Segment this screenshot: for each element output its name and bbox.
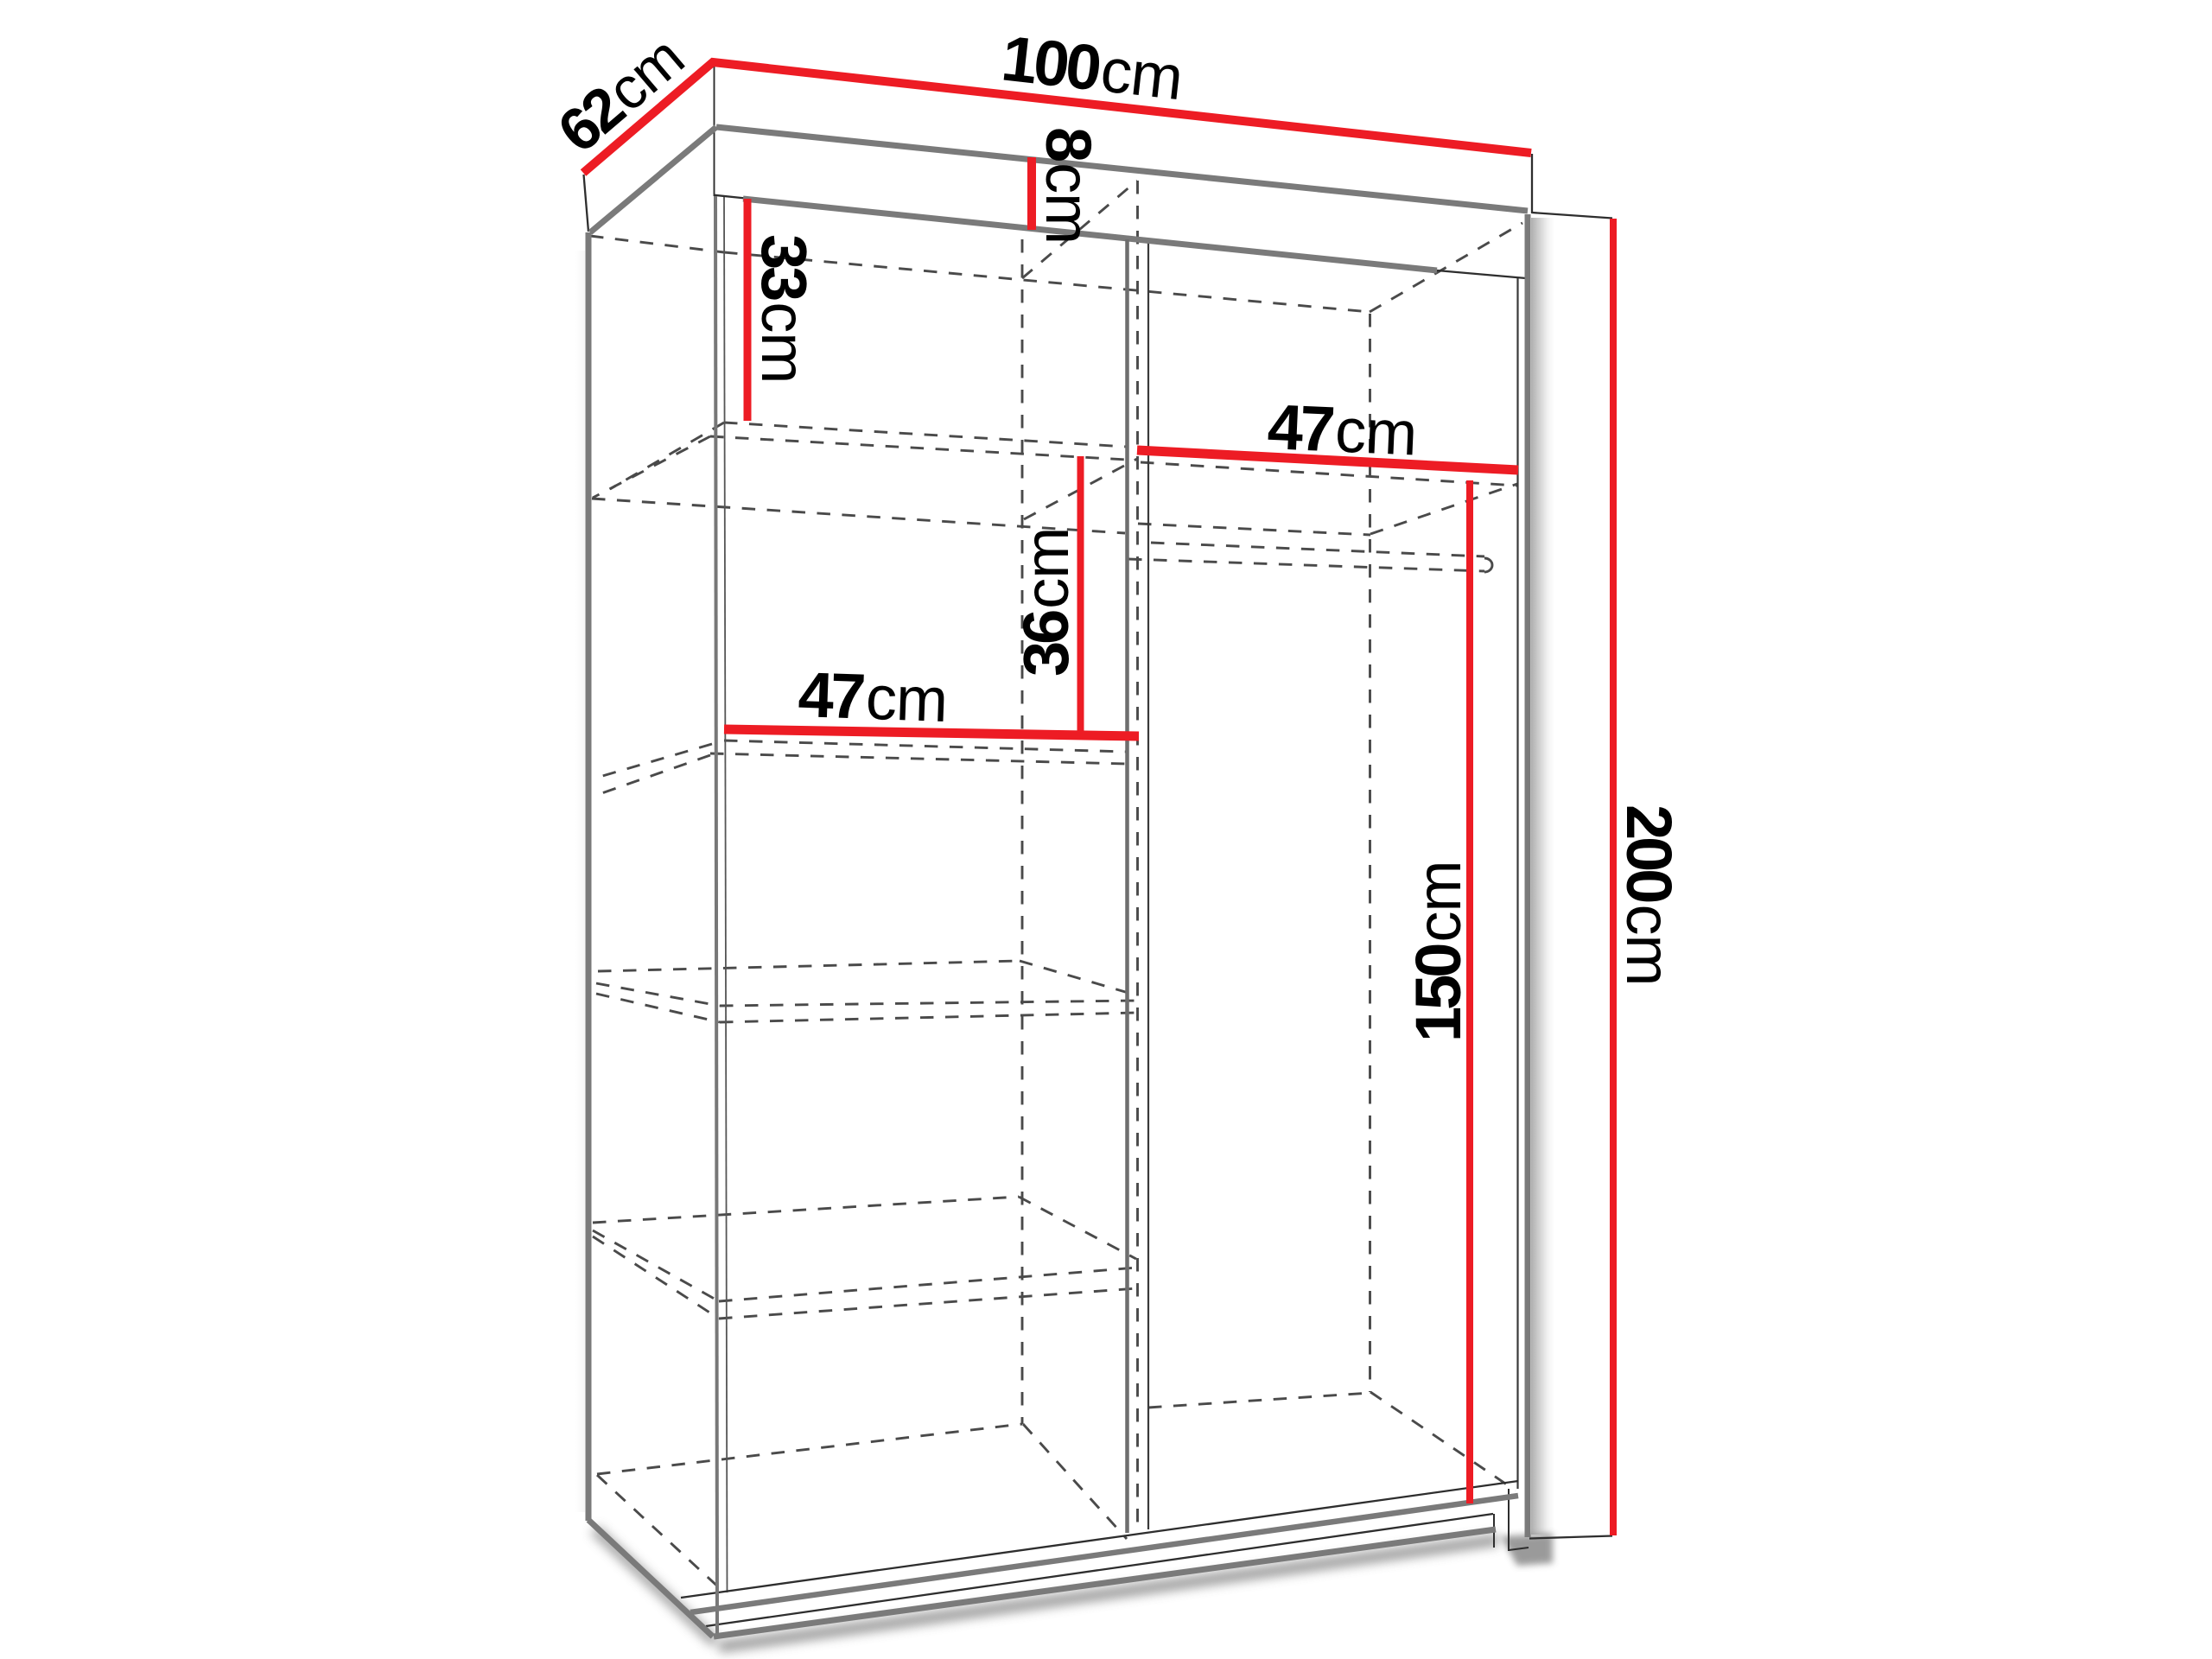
svg-text:36cm: 36cm	[1010, 528, 1082, 677]
svg-text:200cm: 200cm	[1613, 804, 1685, 985]
svg-text:47cm: 47cm	[1266, 391, 1418, 468]
svg-text:150cm: 150cm	[1402, 861, 1474, 1042]
svg-text:8cm: 8cm	[1033, 127, 1104, 244]
svg-text:33cm: 33cm	[748, 234, 820, 383]
svg-text:47cm: 47cm	[797, 658, 948, 735]
